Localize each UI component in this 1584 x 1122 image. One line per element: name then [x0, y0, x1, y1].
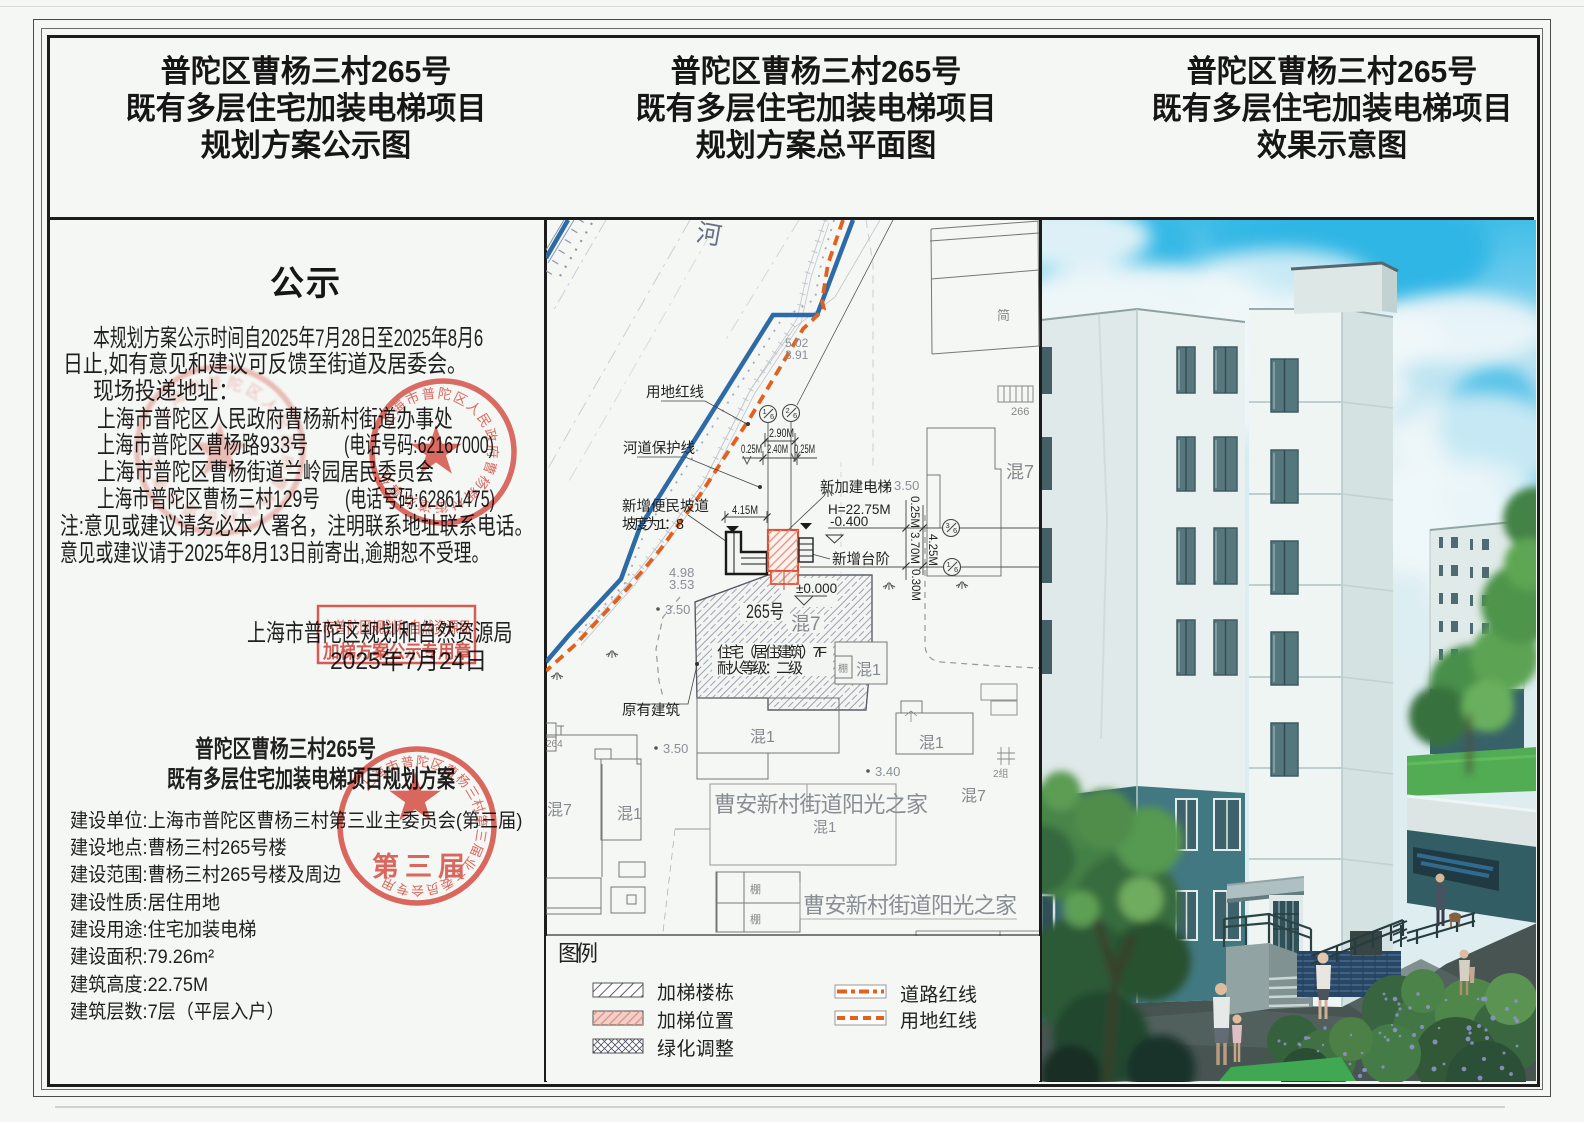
svg-text:第三届: 第三届 [372, 851, 471, 882]
svg-text:市普陀区规划和自然资源局: 市普陀区规划和自然资源局 [322, 619, 471, 637]
svg-text:加梯方案公示专用章: 加梯方案公示专用章 [322, 641, 471, 662]
